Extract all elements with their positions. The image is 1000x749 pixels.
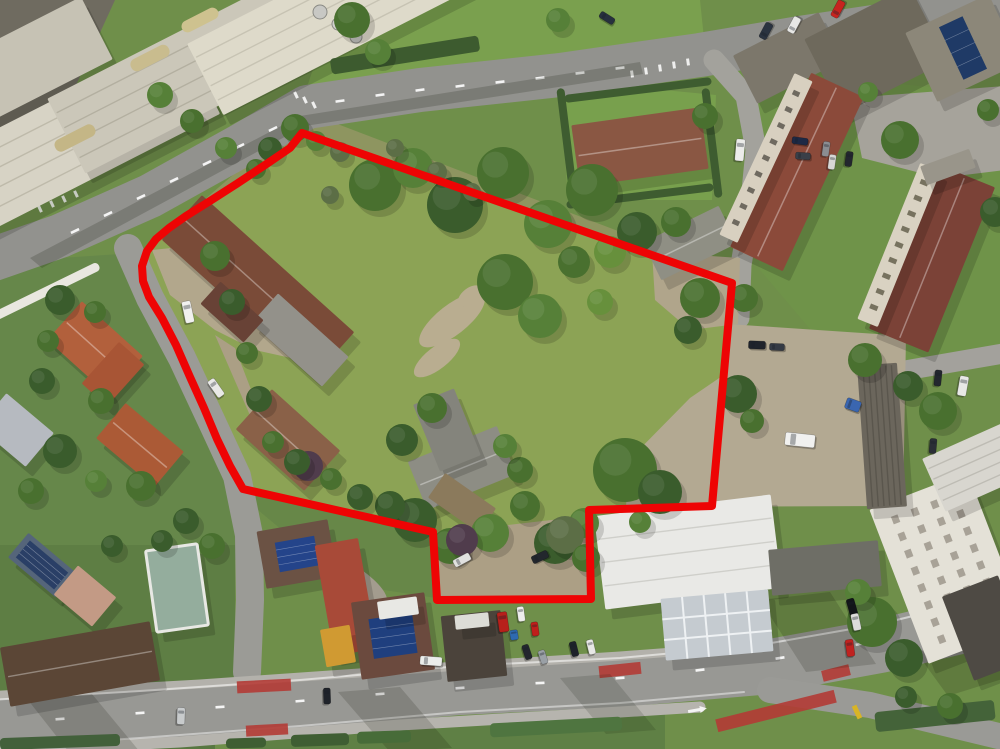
car-body (748, 341, 765, 350)
bike-lane-marking (246, 723, 289, 736)
car-body (784, 432, 815, 448)
car (769, 343, 786, 352)
hedge (226, 737, 266, 748)
tree-highlight (322, 470, 333, 481)
car (795, 152, 812, 162)
car-windshield (424, 657, 428, 664)
tree-highlight (889, 642, 908, 661)
car-body (934, 370, 943, 387)
car (322, 688, 331, 706)
tree-highlight (940, 695, 953, 708)
tree-highlight (222, 291, 235, 304)
tree-highlight (378, 494, 393, 509)
tree-highlight (388, 141, 397, 150)
tree-highlight (983, 200, 998, 215)
car-body (769, 343, 784, 351)
tree-highlight (522, 298, 544, 320)
tree-highlight (39, 332, 50, 343)
tree-highlight (550, 519, 569, 538)
tree-highlight (368, 41, 381, 54)
car-body (509, 629, 518, 640)
tree-highlight (150, 84, 163, 97)
tree-highlight (217, 139, 228, 150)
car-windshield (936, 373, 941, 376)
tree-highlight (202, 535, 215, 548)
car-windshield (737, 143, 744, 148)
tree-highlight (548, 10, 560, 22)
car-body (735, 139, 746, 162)
tree-highlight (350, 486, 363, 499)
tree-highlight (684, 282, 704, 302)
glass-grid-annex-roof (661, 589, 774, 660)
tree-highlight (621, 216, 641, 236)
tree-highlight (354, 164, 380, 190)
tree-highlight (848, 581, 861, 594)
tree-highlight (103, 537, 114, 548)
tree-highlight (897, 688, 908, 699)
teal-flat-roof-building (146, 544, 209, 632)
tree-highlight (590, 291, 603, 304)
tree-highlight (284, 117, 298, 131)
tree-highlight (264, 433, 275, 444)
hedge (291, 733, 349, 747)
car-body (929, 438, 937, 454)
car-windshield (790, 434, 797, 446)
tree-highlight (599, 444, 631, 476)
tree-highlight (513, 494, 528, 509)
car-body (420, 656, 443, 667)
tree-highlight (429, 164, 439, 174)
tree-highlight (182, 111, 194, 123)
car-windshield (751, 342, 754, 348)
tree-highlight (203, 244, 218, 259)
tree-highlight (48, 288, 63, 303)
tree-highlight (87, 472, 98, 483)
lane-dash (535, 681, 544, 684)
aerial-photo (0, 0, 1000, 749)
tree-highlight (742, 411, 754, 423)
car-body (177, 707, 186, 724)
tree-highlight (642, 474, 664, 496)
car-windshield (931, 441, 936, 444)
tree-highlight (571, 169, 597, 195)
tree-highlight (323, 188, 332, 197)
tree-highlight (482, 152, 508, 178)
car (420, 656, 444, 668)
car-body (795, 152, 810, 160)
tree-highlight (896, 374, 911, 389)
tree-highlight (260, 139, 272, 151)
tree-highlight (389, 427, 405, 443)
tree-highlight (86, 303, 97, 314)
tree-highlight (631, 513, 642, 524)
car-body (323, 688, 331, 704)
tree-highlight (483, 259, 511, 287)
tree-highlight (695, 105, 708, 118)
tree-highlight (885, 124, 904, 143)
car (733, 139, 746, 163)
tree-highlight (923, 395, 942, 414)
tree-highlight (449, 527, 465, 543)
glass-grid-annex (661, 589, 774, 660)
car-windshield (178, 710, 184, 713)
car (175, 707, 185, 726)
tree-highlight (46, 437, 63, 454)
car-windshield (772, 344, 775, 349)
tree-highlight (860, 84, 870, 94)
tree-highlight (561, 249, 577, 265)
tree-highlight (21, 480, 34, 493)
tree-highlight (475, 517, 494, 536)
car (927, 438, 937, 455)
tree-highlight (91, 390, 104, 403)
car-windshield (798, 153, 801, 158)
tree-highlight (238, 344, 249, 355)
roof-tank (313, 5, 327, 19)
tree-highlight (677, 319, 691, 333)
tree-highlight (979, 101, 990, 112)
tree-highlight (495, 436, 507, 448)
tree-highlight (249, 388, 262, 401)
tree-highlight (851, 346, 868, 363)
car-windshield (324, 691, 329, 694)
tree-highlight (129, 474, 144, 489)
teal-flat-roof-building-roof (146, 544, 209, 632)
hedge (357, 730, 411, 744)
car (748, 341, 767, 351)
tree-highlight (664, 210, 679, 225)
tree-highlight (153, 532, 164, 543)
aerial-photo-canvas (0, 0, 1000, 749)
tree-highlight (287, 451, 300, 464)
tree-highlight (32, 370, 45, 383)
tree-highlight (176, 510, 189, 523)
tree-highlight (420, 396, 435, 411)
tree-highlight (338, 5, 356, 23)
